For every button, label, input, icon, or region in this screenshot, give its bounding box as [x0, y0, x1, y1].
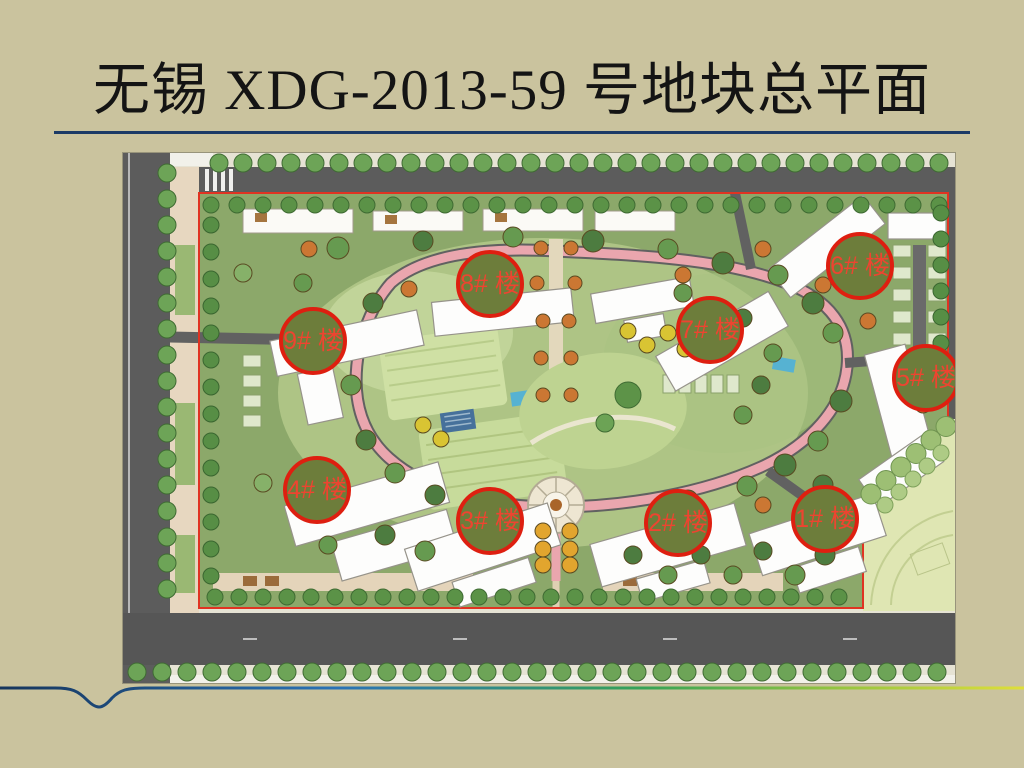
building-marker-2: 2# 楼	[644, 489, 712, 557]
building-marker-6: 6# 楼	[826, 232, 894, 300]
site-plan-image: 1# 楼 2# 楼 3# 楼 4# 楼 5# 楼 6# 楼 7# 楼 8# 楼 …	[123, 153, 955, 683]
slide: 无锡 XDG-2013-59 号地块总平面 图	[0, 0, 1024, 768]
title-underline	[54, 131, 970, 134]
building-marker-8: 8# 楼	[456, 250, 524, 318]
building-marker-5: 5# 楼	[892, 344, 955, 412]
building-marker-7: 7# 楼	[676, 296, 744, 364]
slide-title: 无锡 XDG-2013-59 号地块总平面	[0, 44, 1024, 126]
site-plan-drawing	[123, 153, 955, 683]
bottom-decoration-line	[0, 680, 1024, 720]
building-marker-4: 4# 楼	[283, 456, 351, 524]
building-marker-9: 9# 楼	[279, 307, 347, 375]
building-marker-1: 1# 楼	[791, 485, 859, 553]
building-marker-3: 3# 楼	[456, 487, 524, 555]
